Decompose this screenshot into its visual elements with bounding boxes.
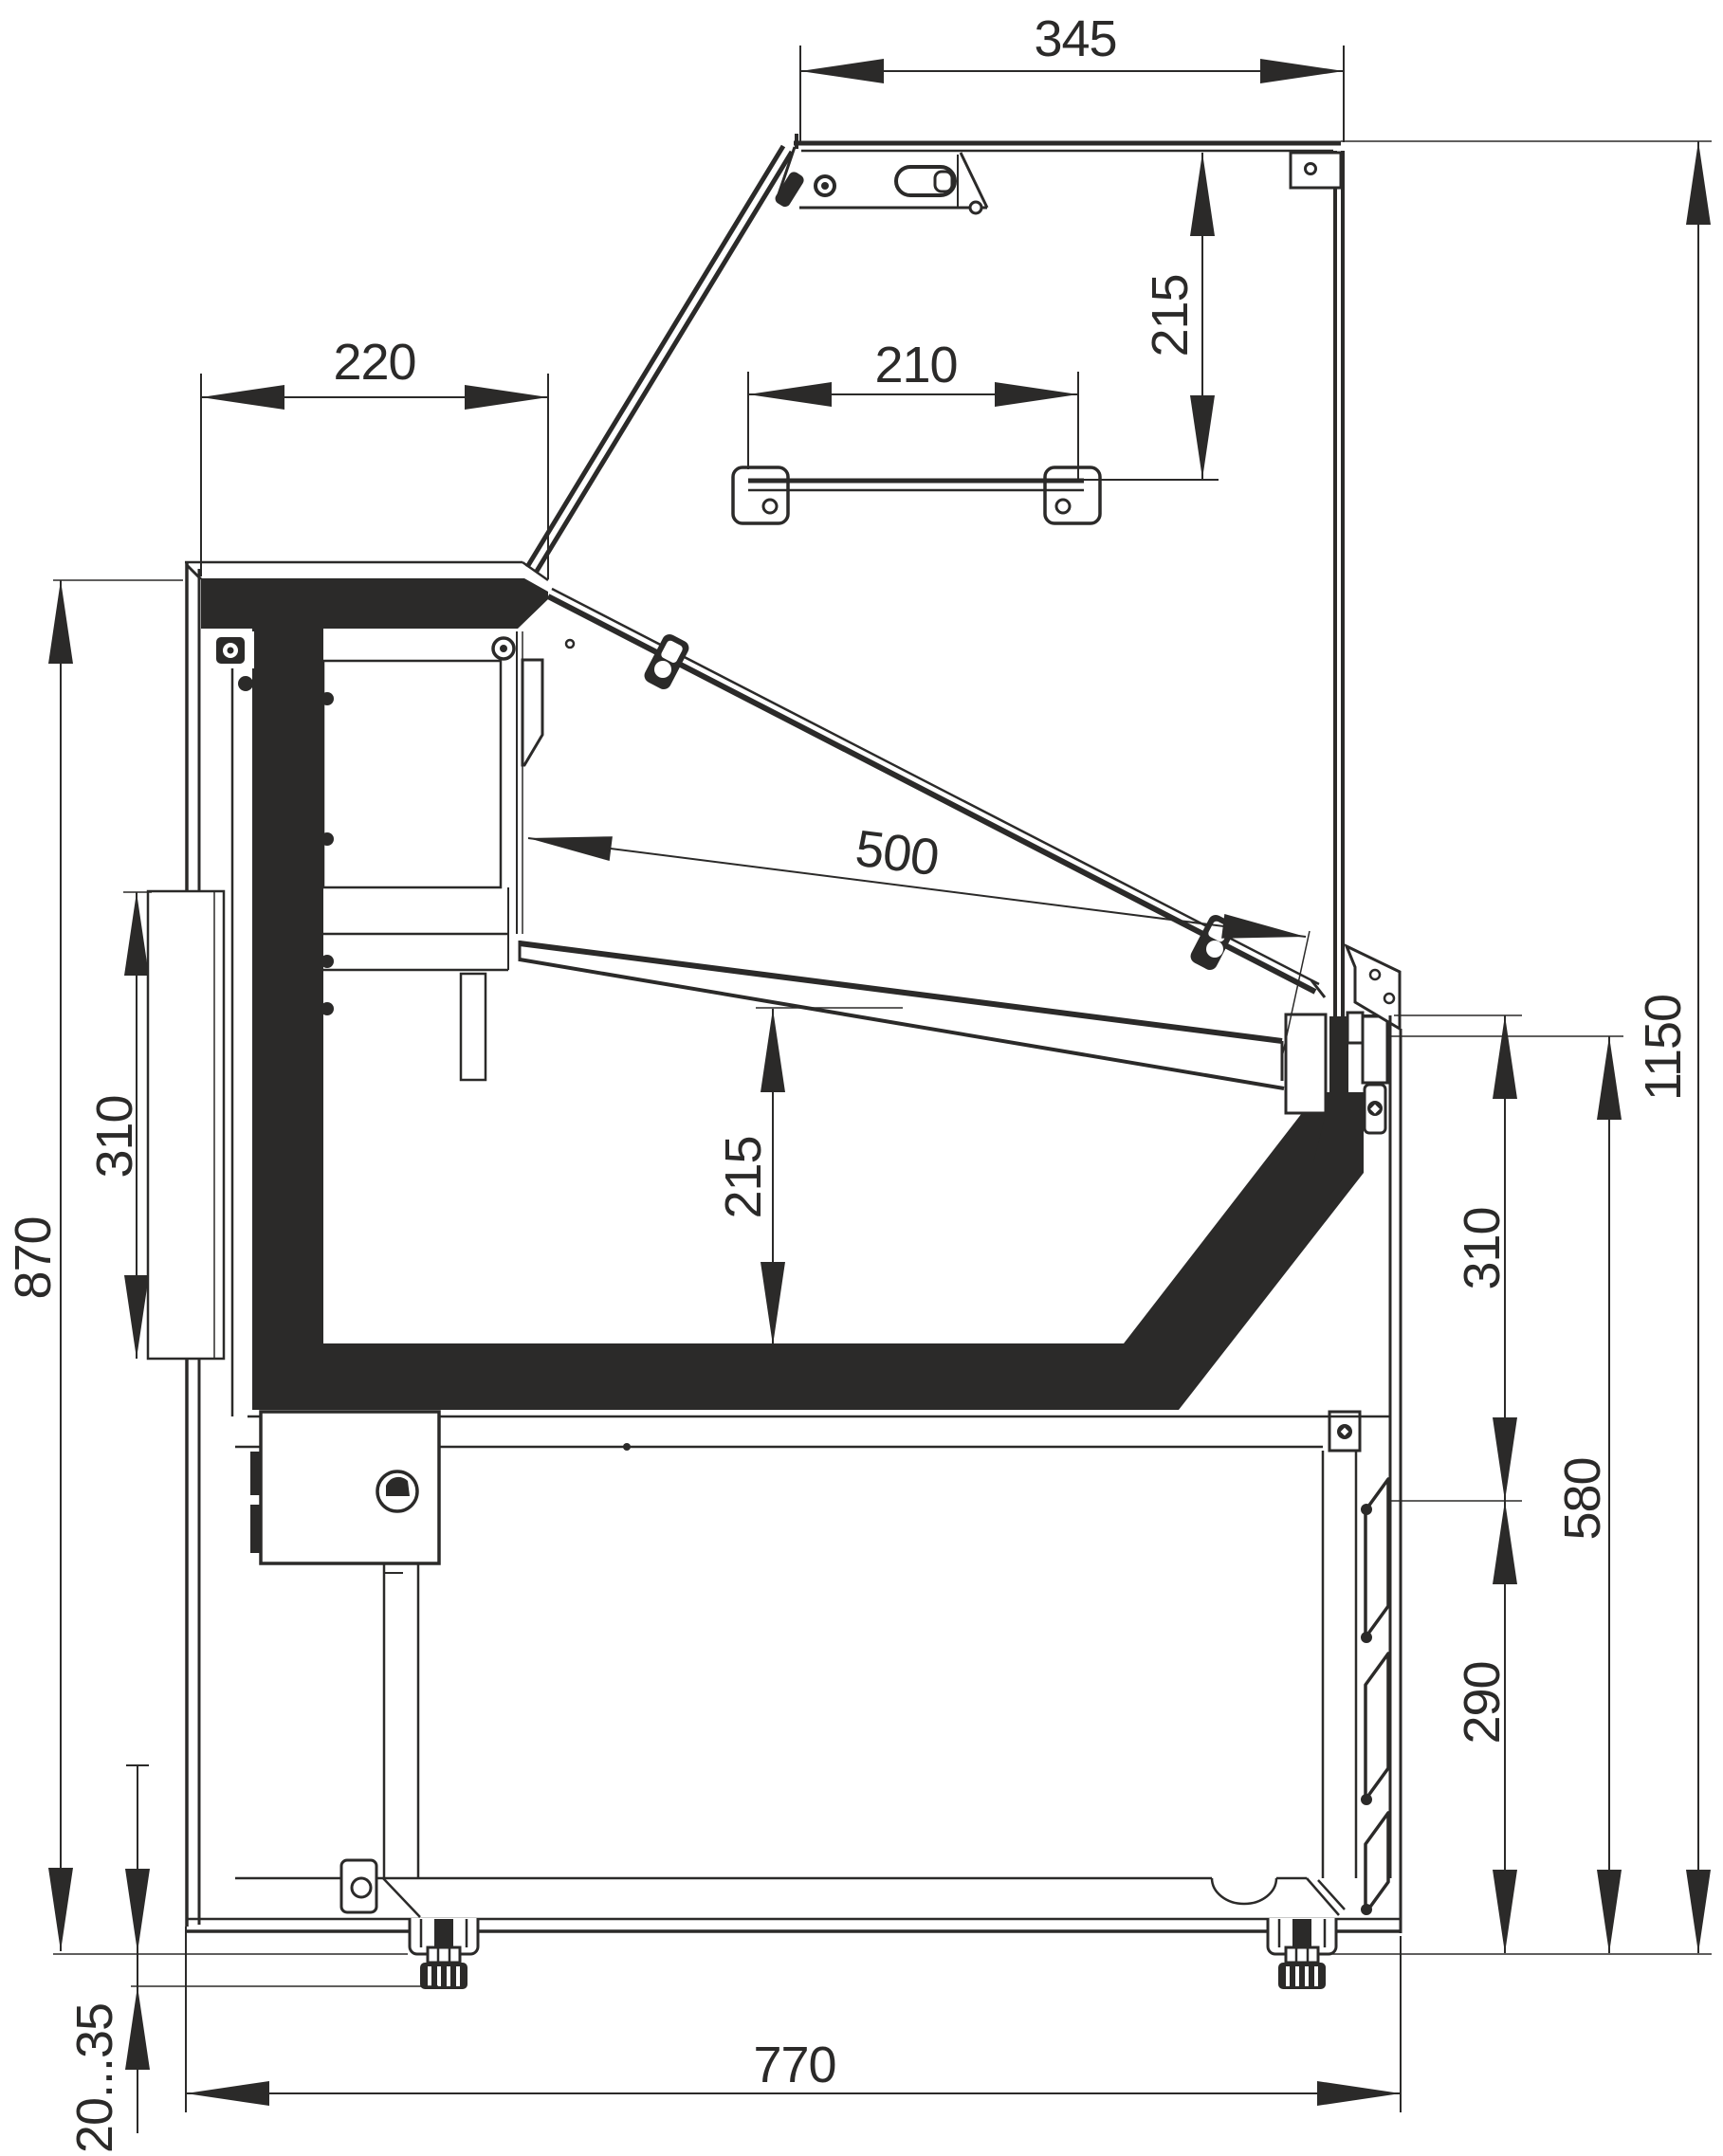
svg-text:580: 580 [1554,1457,1611,1540]
svg-text:215: 215 [1142,274,1199,356]
svg-text:210: 210 [874,337,957,393]
svg-text:310: 310 [86,1095,143,1178]
svg-text:215: 215 [715,1136,772,1218]
svg-text:770: 770 [753,2037,835,2093]
svg-text:1150: 1150 [1635,995,1692,1101]
svg-text:290: 290 [1454,1661,1511,1744]
svg-text:310: 310 [1454,1207,1511,1289]
svg-text:220: 220 [333,334,415,391]
svg-text:20...35: 20...35 [66,2003,123,2153]
svg-text:870: 870 [5,1216,62,1299]
svg-text:500: 500 [852,820,942,886]
svg-text:345: 345 [1034,10,1116,67]
